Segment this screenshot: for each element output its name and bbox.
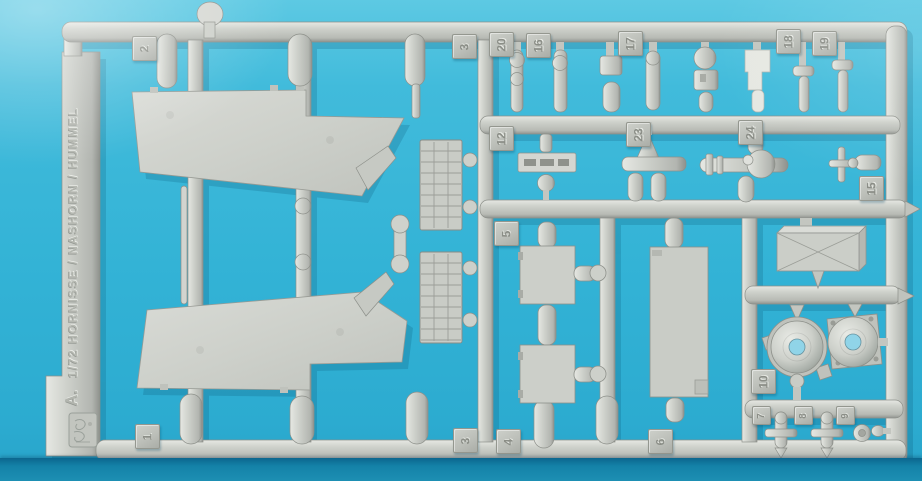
pioneer-tool-parts [354,146,396,316]
part-tag-8: 8 [794,406,813,425]
cross-rail-right-upper [745,286,900,304]
hatch-part [694,47,718,112]
part-tag-3-bottom: 3 [453,428,478,453]
small-road-wheel [854,425,871,442]
runner-3 [478,40,493,442]
part-tag-6: 6 [648,429,673,454]
part-tag-5: 5 [494,221,519,246]
part-tag-4: 4 [496,429,521,454]
part-tag-12: 12 [489,126,514,151]
small-parts-row-top [510,42,854,112]
cross-rail-middle [480,200,907,218]
cross-rail-upper [480,116,900,134]
bracket-part [600,56,622,112]
periscope-part [646,51,660,110]
part-tag-17: 17 [618,31,643,56]
part-tag-19: 19 [812,31,837,56]
drive-housing-right [827,304,888,369]
part-tag-1: 1 [135,424,160,449]
part-tag-23: 23 [626,122,651,147]
sprue-photo: 1/72 HORNISSE / NASHORN / HUMMEL A. 2 3 … [0,0,922,481]
hatch-panel-upper [518,222,606,304]
part-tag-10: 10 [751,369,776,394]
part-tag-7: 7 [752,406,771,425]
table-edge-shadow [0,458,922,481]
part-tag-20: 20 [489,32,514,57]
t-pin-part-2 [832,60,853,112]
right-rail [886,26,907,464]
sprue-drawing [0,0,922,481]
tab-sprue-letter: A. [64,380,84,406]
gun-cradle-part [745,50,770,112]
part-tag-2: 2 [132,36,157,61]
part-tag-16: 16 [526,33,551,58]
fighting-compartment-floor [650,218,708,422]
part-tag-9: 9 [836,406,855,425]
t-pin-part-1 [793,66,814,112]
track-link-bar [518,134,576,200]
antenna-mount-part [510,50,525,112]
engine-grille-lower [420,252,477,343]
hatch-panel-lower [518,305,606,403]
maker-emblem [69,413,97,447]
part-tag-18: 18 [776,29,801,54]
part-tag-24: 24 [738,120,763,145]
stowage-box [777,218,866,288]
part-tag-3-top: 3 [452,34,477,59]
part-tag-15: 15 [859,176,884,201]
tab-scale-and-kit-name: 1/72 HORNISSE / NASHORN / HUMMEL [66,78,82,378]
tow-bar-dumbbell [391,215,409,273]
engine-grille-upper [420,140,477,230]
ball-pin-part [553,50,568,112]
